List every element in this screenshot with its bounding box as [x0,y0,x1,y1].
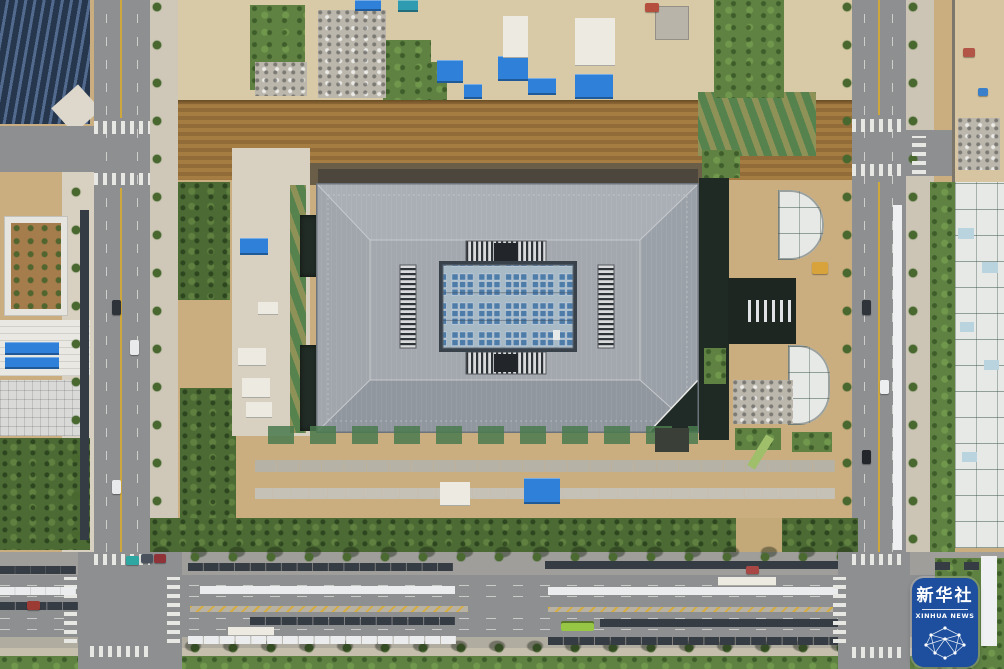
blue-container-1 [355,0,381,11]
crosswalk-ne-east [912,136,926,174]
crosswalk-ne-1 [852,119,906,132]
gray-car [141,554,153,563]
crosswalk-ne-2 [852,164,906,176]
west-road-lane-dash-2 [137,0,138,552]
median-west [190,606,468,612]
west-margin-blue-container [240,238,268,255]
ramp-structure-north [778,190,824,260]
rooftop-panel-4 [984,360,999,370]
blue-roof-shed-2 [5,357,59,369]
west-margin-container-2 [242,378,270,398]
west-road-lane-dash-1 [106,0,107,552]
rooftop-panel-5 [962,452,977,462]
west-road-yellow-line-s [120,188,122,552]
east-road-tree-row-west [841,0,853,552]
north-parked-row-w [200,586,455,596]
watermark-en-text: XINHUA NEWS [915,612,974,620]
ne-green-field [714,0,784,98]
east-margin-green-2 [704,348,726,384]
truck-cluster [655,6,689,40]
site-office-2 [575,18,615,66]
blue-container-3 [437,60,463,83]
blue-container-7 [575,74,613,99]
east-louver-vent [598,265,614,348]
rooftop-panel-1 [958,228,974,239]
main-building-roof [316,183,699,433]
crosswalk-se-west [833,577,846,643]
rooftop-hatch [553,330,560,340]
east-road-lane-dash-1 [864,0,865,552]
west-side-street [0,126,94,172]
east-road-yellow-line-n [878,0,880,115]
sw-parking-row-2 [0,587,76,597]
red-equipment [963,48,975,57]
crosswalk-sw-east [167,577,180,643]
south-parked-row-e [548,637,860,647]
east-wall-trench [699,178,729,440]
west-road-tree-row-east [151,0,164,550]
south-parked-row-w [188,636,456,646]
blue-container-6 [528,78,556,95]
rooftop-panel-2 [982,262,998,273]
rooftop-panel-3 [960,322,974,332]
east-margin-green-1 [702,150,740,178]
staging-green-patch-2 [383,40,431,100]
east-road-yellow-line-s [878,182,880,552]
crosswalk-se-south [852,647,906,658]
north-parked-row-e [548,587,848,597]
median-east [548,607,833,612]
blue-container-south [524,478,560,504]
sw-parking-row-1 [0,566,76,576]
dark-red-car [154,554,166,563]
dark-trench-above-roof [318,169,698,184]
west-margin-container-3 [246,402,272,418]
staging-material-pile-1 [318,10,386,98]
south-netting-band [268,426,698,444]
west-margin-truck [258,302,278,315]
red-truck [645,3,659,12]
crosswalk-se-north [852,554,906,565]
east-road-tree-row-east [907,0,919,556]
crosswalk-nw-2 [94,173,150,185]
south-traffic-row-w [250,617,455,627]
crosswalk-sw-south [90,646,152,657]
aerial-photo: 新华社 XINHUA NEWS [0,0,1004,669]
blue-container-5 [498,56,528,81]
courtyard-lawn [11,223,61,309]
ne-material-pile [958,118,1000,170]
staging-material-pile-2 [255,62,307,96]
xinhua-network-globe-icon [922,625,968,661]
west-road-yellow-line-n [120,0,122,118]
watermark-divider [922,609,968,610]
dark-shed [655,428,689,452]
blue-container-4 [464,84,482,99]
sunken-wing-beams [748,300,792,322]
site-office-1 [503,16,528,58]
car-on-east-road-1 [862,300,871,315]
se-corner-parked-column [981,556,1001,646]
north-service-cars-w [188,563,453,572]
teal-car [126,556,139,565]
east-road-green-verge [930,182,955,556]
car-on-east-road-2 [880,380,889,394]
north-service-cars-e [545,561,860,571]
blue-equipment [978,88,988,96]
xinhua-watermark-badge: 新华社 XINHUA NEWS [912,578,978,667]
west-margin-green-1 [178,182,230,300]
netted-slope [698,92,816,156]
green-bus [561,621,594,631]
white-shed-south [440,482,470,506]
car-on-west-road-1 [112,300,121,315]
east-margin-rubble [733,380,793,424]
blue-roof-shed-1 [5,342,59,355]
south-green-mound-2 [792,432,832,452]
blue-container-2 [398,0,418,12]
crosswalk-nw-1 [94,121,150,134]
east-road-parked-cars [893,205,903,550]
ramp-structure-south [788,345,830,425]
bus-shelter-north [718,577,776,586]
west-margin-container-1 [238,348,266,366]
south-traffic-row-e [600,619,840,630]
car-on-west-road-2 [130,340,139,355]
car-on-west-road-3 [112,480,121,494]
bus-shelter-south [228,627,274,636]
red-car-north [746,566,759,574]
car-on-east-road-3 [862,450,871,464]
west-road-parked-cars [80,210,90,540]
watermark-cn-text: 新华社 [917,587,974,606]
excavator [812,262,828,274]
se-corner-cars-row [935,562,979,572]
red-car-west [27,601,40,610]
west-louver-vent [400,265,416,348]
